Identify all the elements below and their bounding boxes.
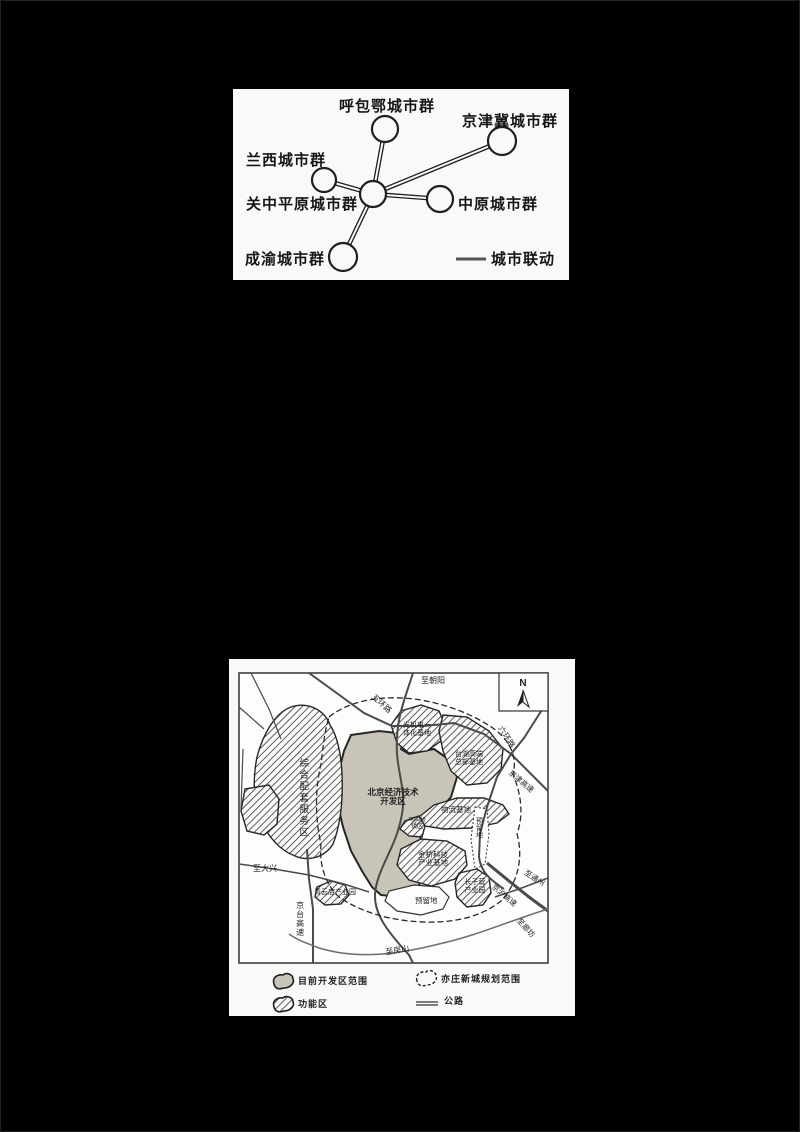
region-label-yuliudi-east: 预留地 [475, 817, 483, 838]
road-label-jingtai-expwy: 京台高速 [295, 901, 304, 937]
label-zhongyuan: 中原城市群 [458, 195, 538, 213]
compass-north-label: N [519, 678, 526, 689]
network-nodes [312, 116, 516, 271]
region-label-zonghe-fuwu: 综合配套服务区 [297, 758, 307, 839]
region-label-guangjidian-line1: 光机电一 [393, 722, 441, 730]
region-label-guangjidian: 光机电一 体化基地 [393, 722, 441, 737]
region-label-kaifaqu: 北京经济技术 开发区 [358, 788, 428, 806]
region-label-yuliudi: 预留地 [415, 897, 438, 905]
region-label-guangjidian-line2: 体化基地 [393, 730, 441, 738]
node-zhongyuan [427, 186, 453, 212]
legend-label-functional-area: 功能区 [298, 1000, 328, 1010]
legend-icon-functional-area [274, 997, 294, 1012]
label-jingjinji: 京津冀城市群 [462, 112, 558, 130]
region-label-taihu: 台湖高端 总部基地 [445, 751, 493, 766]
region-label-kaifaqu-line2: 开发区 [358, 797, 428, 806]
map-figure-panel: N 至朝阳 五环路 六环路 京津高速 至通州 京沪高速 至廊坊 至房山 京台高速… [229, 659, 575, 1016]
region-label-taihu-line2: 总部基地 [445, 759, 493, 767]
road-label-to-chaoyang: 至朝阳 [421, 677, 445, 686]
region-west-lobe [241, 785, 279, 835]
region-label-qingyundian: 青云店产业园 [314, 889, 356, 897]
region-label-majuqiao: 马驹桥 镇区 [401, 818, 433, 831]
region-label-changziying: 长子营 产业园 [457, 879, 493, 894]
legend-label-planning-area: 亦庄新城规划范围 [441, 975, 521, 985]
label-lanxi: 兰西城市群 [246, 151, 326, 169]
node-hubaoe [372, 116, 398, 142]
node-jingjinji [488, 127, 516, 155]
region-label-changziying-line2: 产业园 [457, 887, 493, 895]
node-lanxi [312, 168, 336, 192]
scanned-exam-page: 呼包鄂城市群 京津冀城市群 兰西城市群 关中平原城市群 中原城市群 成渝城市群 … [0, 0, 800, 1132]
label-hubaoe: 呼包鄂城市群 [339, 97, 435, 115]
region-label-jinqiao-line2: 产业基地 [409, 859, 457, 867]
node-guanzhong-central [360, 181, 386, 207]
label-chengyu: 成渝城市群 [245, 250, 325, 268]
road-label-to-daxing: 至大兴 [253, 865, 277, 874]
compass: N [499, 673, 548, 711]
development-area-map: N [229, 659, 575, 1016]
legend-icon-planning-area [417, 971, 437, 986]
network-edges-outer [324, 129, 502, 257]
node-chengyu [329, 243, 357, 271]
region-label-majuqiao-line2: 镇区 [401, 824, 433, 830]
legend-city-linkage-label: 城市联动 [491, 250, 555, 268]
region-label-changziying-line1: 长子营 [457, 879, 493, 887]
region-label-jinqiao: 金桥科技 产业基地 [409, 851, 457, 867]
legend-label-highway: 公路 [444, 997, 464, 1007]
legend-icon-current-area [274, 974, 294, 989]
region-label-wuliu: 物流基地 [441, 806, 471, 814]
network-figure-panel: 呼包鄂城市群 京津冀城市群 兰西城市群 关中平原城市群 中原城市群 成渝城市群 … [233, 89, 569, 280]
city-cluster-network-diagram: 呼包鄂城市群 京津冀城市群 兰西城市群 关中平原城市群 中原城市群 成渝城市群 … [233, 89, 569, 280]
legend-label-current-area: 目前开发区范围 [298, 977, 368, 987]
region-label-taihu-line1: 台湖高端 [445, 751, 493, 759]
label-guanzhong: 关中平原城市群 [246, 195, 358, 213]
